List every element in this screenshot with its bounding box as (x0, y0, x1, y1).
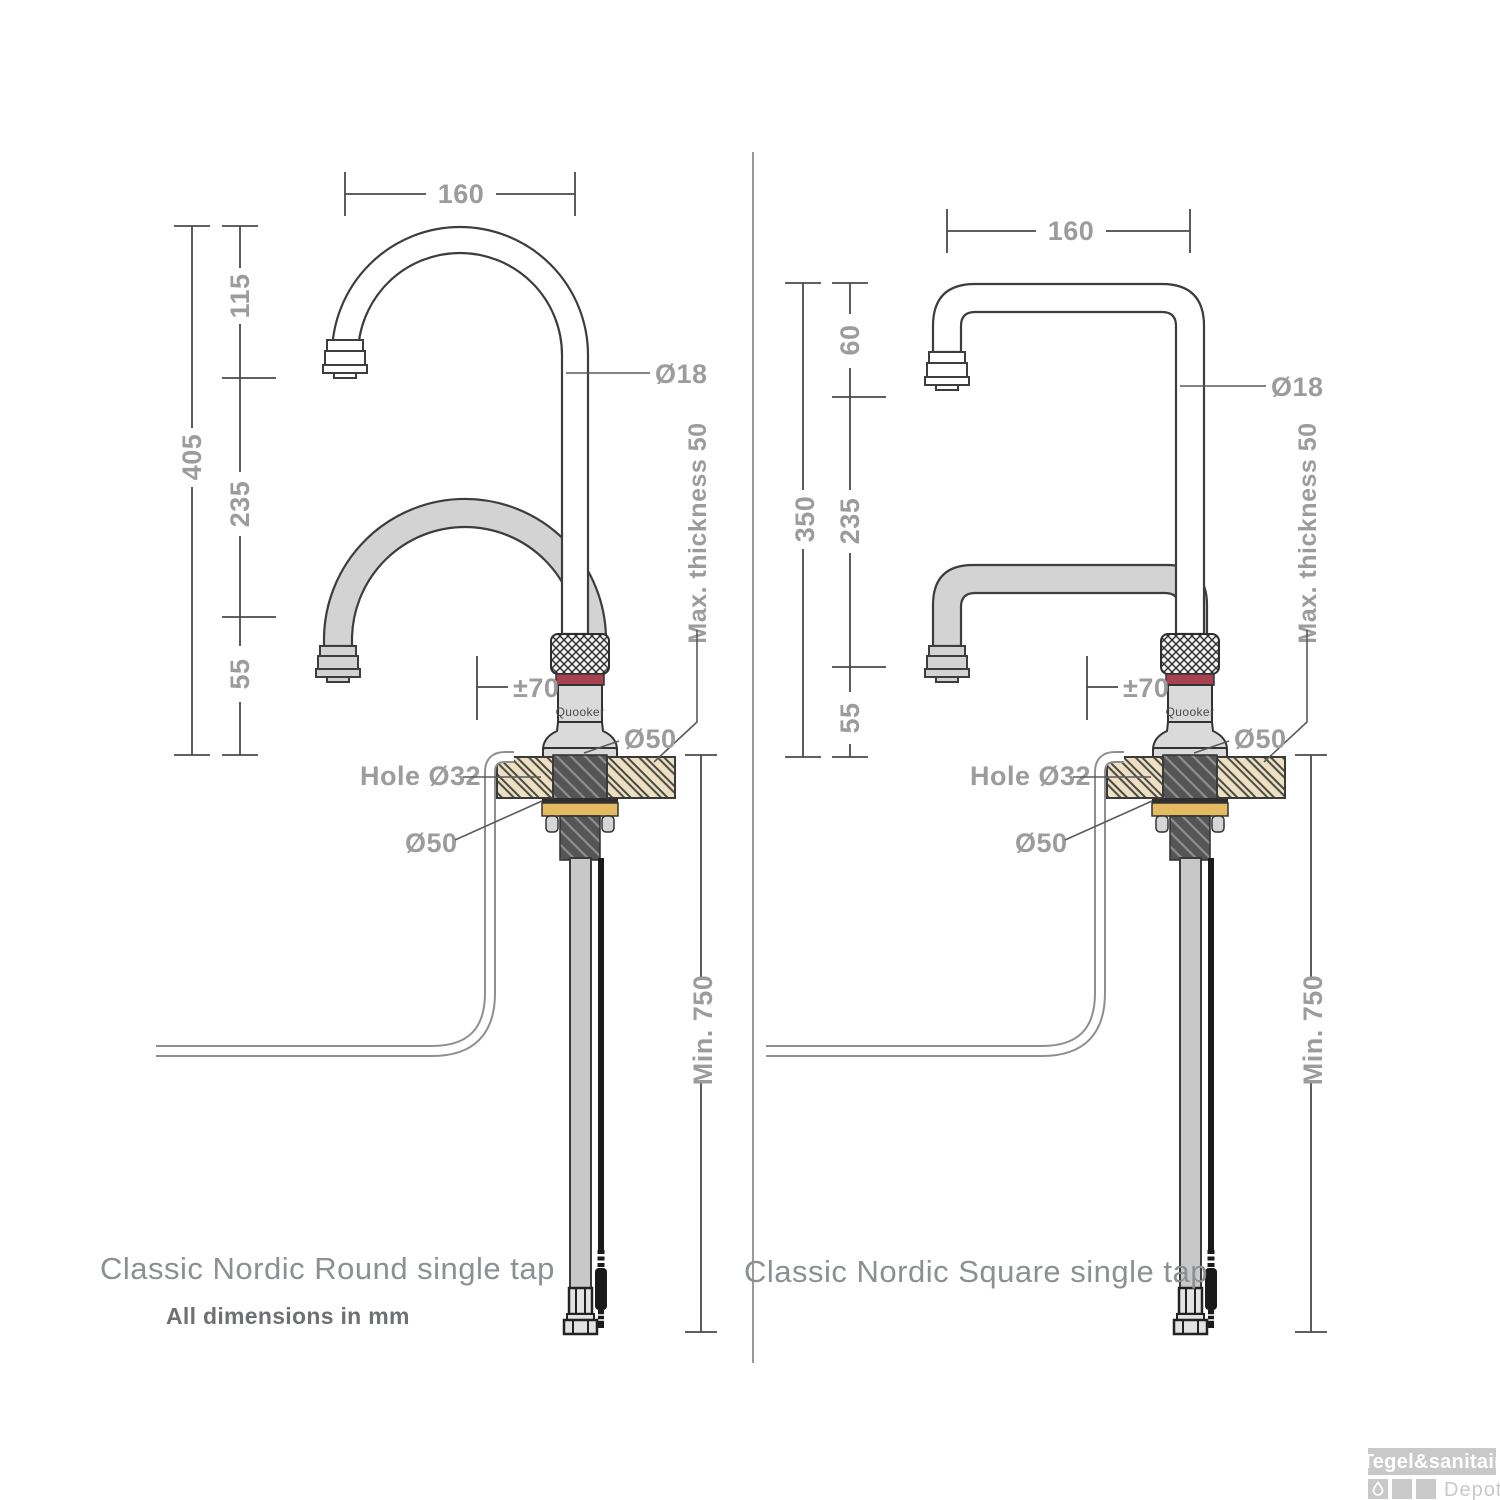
right-dim-upper-label: 60 (835, 324, 865, 355)
left-threaded-shank-upper (553, 755, 607, 800)
left-dim-top-width-label: 160 (438, 179, 485, 209)
right-stud-right (1212, 816, 1224, 832)
right-base-diameter-label: Ø50 (1234, 724, 1287, 754)
right-brass-washer (1152, 803, 1228, 816)
right-spout-lower-nozzle (925, 646, 969, 682)
left-base-diameter-label: Ø50 (624, 724, 677, 754)
left-dim-lower-label: 55 (225, 658, 255, 689)
left-brand-label: Quooker (556, 705, 605, 719)
left-threaded-shank-lower (560, 816, 600, 860)
left-dim-middle-label: 235 (225, 481, 255, 528)
watermark-square-2 (1392, 1479, 1412, 1499)
tap-dimension-diagram: Quooker (0, 0, 1500, 1500)
right-threaded-shank-upper (1163, 755, 1217, 800)
left-dim-upper-label: 115 (225, 273, 255, 318)
left-tube-fitting (564, 1288, 597, 1334)
dimensions-note: All dimensions in mm (166, 1303, 410, 1329)
left-washer-diameter-label: Ø50 (405, 828, 458, 858)
right-threaded-shank-lower (1170, 816, 1210, 860)
right-max-thickness-label: Max. thickness 50 (1294, 422, 1322, 643)
watermark-logo: Tegel&sanitair Depot (1362, 1448, 1500, 1500)
right-brand-label: Quooker (1166, 705, 1215, 719)
right-stud-left (1156, 816, 1168, 832)
right-spout-upper-nozzle (925, 352, 969, 390)
left-counter-slab-right (607, 757, 675, 798)
right-knurled-nut (1161, 634, 1219, 674)
left-caption: Classic Nordic Round single tap (100, 1251, 555, 1286)
diagram-page: Quooker (0, 0, 1500, 1500)
right-counter-slab-right (1217, 757, 1285, 798)
left-knurled-nut (551, 634, 609, 674)
left-brass-washer (542, 803, 618, 816)
right-riser-tube (1180, 858, 1201, 1288)
right-red-ring (1166, 674, 1214, 685)
left-stud-right (602, 816, 614, 832)
left-riser-tube (570, 858, 591, 1288)
left-spout-lower-nozzle (316, 646, 360, 682)
right-washer-diameter-label: Ø50 (1015, 828, 1068, 858)
right-tube-fitting (1174, 1288, 1207, 1334)
right-spout-diameter-label: Ø18 (1271, 372, 1324, 402)
watermark-line1: Tegel&sanitair (1362, 1451, 1500, 1473)
right-dim-lower-label: 55 (835, 702, 865, 733)
left-spout-diameter-label: Ø18 (655, 359, 708, 389)
right-swivel-label: ±70 (1123, 673, 1169, 703)
right-min-depth-label: Min. 750 (1298, 975, 1328, 1086)
right-dim-overall-label: 350 (790, 496, 820, 543)
watermark-square-3 (1416, 1479, 1436, 1499)
right-dim-middle-label: 235 (835, 498, 865, 545)
right-caption: Classic Nordic Square single tap (744, 1254, 1208, 1289)
left-red-ring (556, 674, 604, 685)
right-hole-diameter-label: Hole Ø32 (970, 761, 1091, 791)
left-hole-diameter-label: Hole Ø32 (360, 761, 481, 791)
right-dim-top-width-label: 160 (1048, 216, 1095, 246)
left-stud-left (546, 816, 558, 832)
watermark-line2: Depot (1444, 1479, 1500, 1500)
left-max-thickness-label: Max. thickness 50 (684, 422, 712, 643)
left-min-depth-label: Min. 750 (688, 975, 718, 1086)
left-spout-upper-nozzle (323, 340, 367, 378)
left-dim-overall-label: 405 (177, 434, 207, 481)
left-swivel-label: ±70 (513, 673, 559, 703)
